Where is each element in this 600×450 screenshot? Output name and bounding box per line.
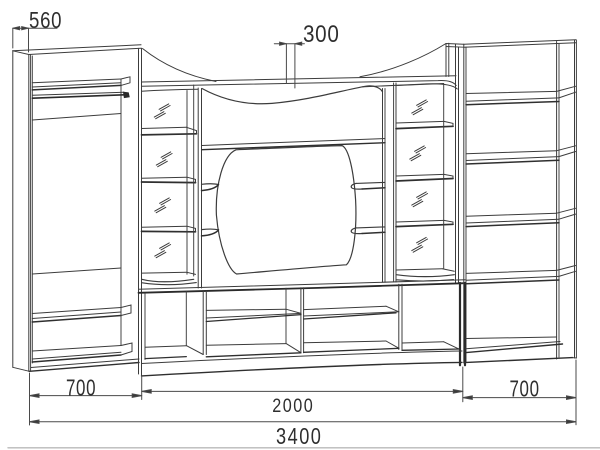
svg-text:300: 300 [303, 21, 339, 48]
svg-text:700: 700 [66, 375, 96, 401]
svg-text:3400: 3400 [276, 424, 322, 450]
svg-text:560: 560 [29, 8, 62, 33]
svg-text:700: 700 [510, 376, 540, 402]
svg-text:2000: 2000 [272, 395, 314, 417]
